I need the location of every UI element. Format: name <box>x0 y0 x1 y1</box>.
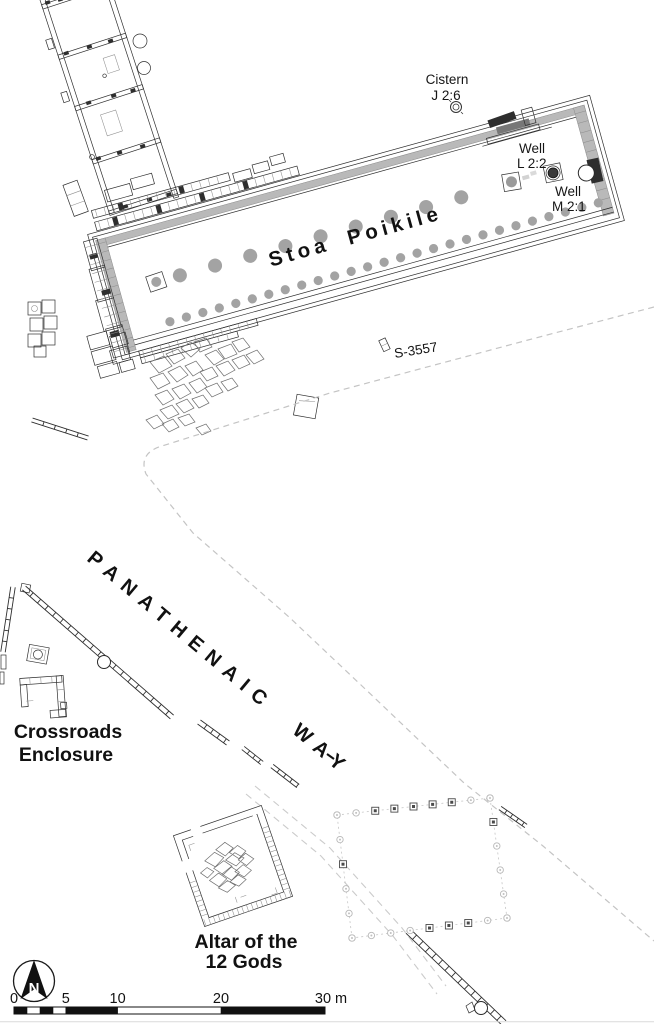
site-plan: Stoa Poikile Cistern J 2:6 Well L 2:2 We… <box>0 0 654 1024</box>
altar-label-1: Altar of the <box>195 931 298 953</box>
ruin-blocks <box>45 0 172 214</box>
crossroads-wellhead <box>27 644 50 664</box>
interior-base <box>146 272 167 293</box>
find-s3557-marker <box>379 338 390 352</box>
scale-tick-20: 20 <box>213 991 229 1007</box>
altar-of-12-gods <box>170 804 292 928</box>
stoa-porch-ticks <box>142 321 250 362</box>
cistern-label-2: J 2:6 <box>431 88 460 103</box>
drain-junction-circle <box>98 656 111 669</box>
peribolos-fence <box>334 795 510 941</box>
scale-tick-5: 5 <box>62 991 70 1007</box>
crossroads-enclosure <box>20 675 68 720</box>
northwest-ruins <box>25 0 178 357</box>
crossroads-label-2: Enclosure <box>19 744 113 766</box>
find-s3557-label: S-3557 <box>393 339 438 361</box>
site-plan-page: Stoa Poikile Cistern J 2:6 Well L 2:2 We… <box>0 0 654 1024</box>
scale-tick-30: 30 m <box>315 991 347 1007</box>
north-arrow: N <box>14 960 55 1002</box>
altar-remains <box>194 835 262 898</box>
north-arrow-letter: N <box>29 980 40 997</box>
pit-circle <box>133 34 147 48</box>
scale-tick-0: 0 <box>10 991 18 1007</box>
block-cluster-west <box>28 300 57 357</box>
well-l-label-1: Well <box>519 141 545 156</box>
well-m-label-1: Well <box>555 184 581 199</box>
small-structure-west <box>63 180 88 216</box>
well-l22-icon <box>502 172 522 192</box>
scale-bar: 0 5 10 20 30 m <box>10 991 347 1014</box>
well-m-label-2: M 2:1 <box>552 199 586 214</box>
scale-tick-10: 10 <box>110 991 126 1007</box>
drain-head-block <box>20 583 30 593</box>
cistern-label-1: Cistern <box>426 72 469 87</box>
crossroads-label-1: Crossroads <box>14 721 123 743</box>
pit-circle <box>138 62 151 75</box>
rubble-field <box>146 338 264 435</box>
stoa-poikile-building: Stoa Poikile <box>49 55 627 379</box>
panathenaic-way-label: PANATHENAIC WAY <box>83 547 356 781</box>
well-l-label-2: L 2:2 <box>517 156 547 171</box>
road-edge-dashed-pair-a <box>255 786 446 986</box>
drain-manhole-circle <box>475 1002 488 1015</box>
altar-label-2: 12 Gods <box>206 951 283 973</box>
